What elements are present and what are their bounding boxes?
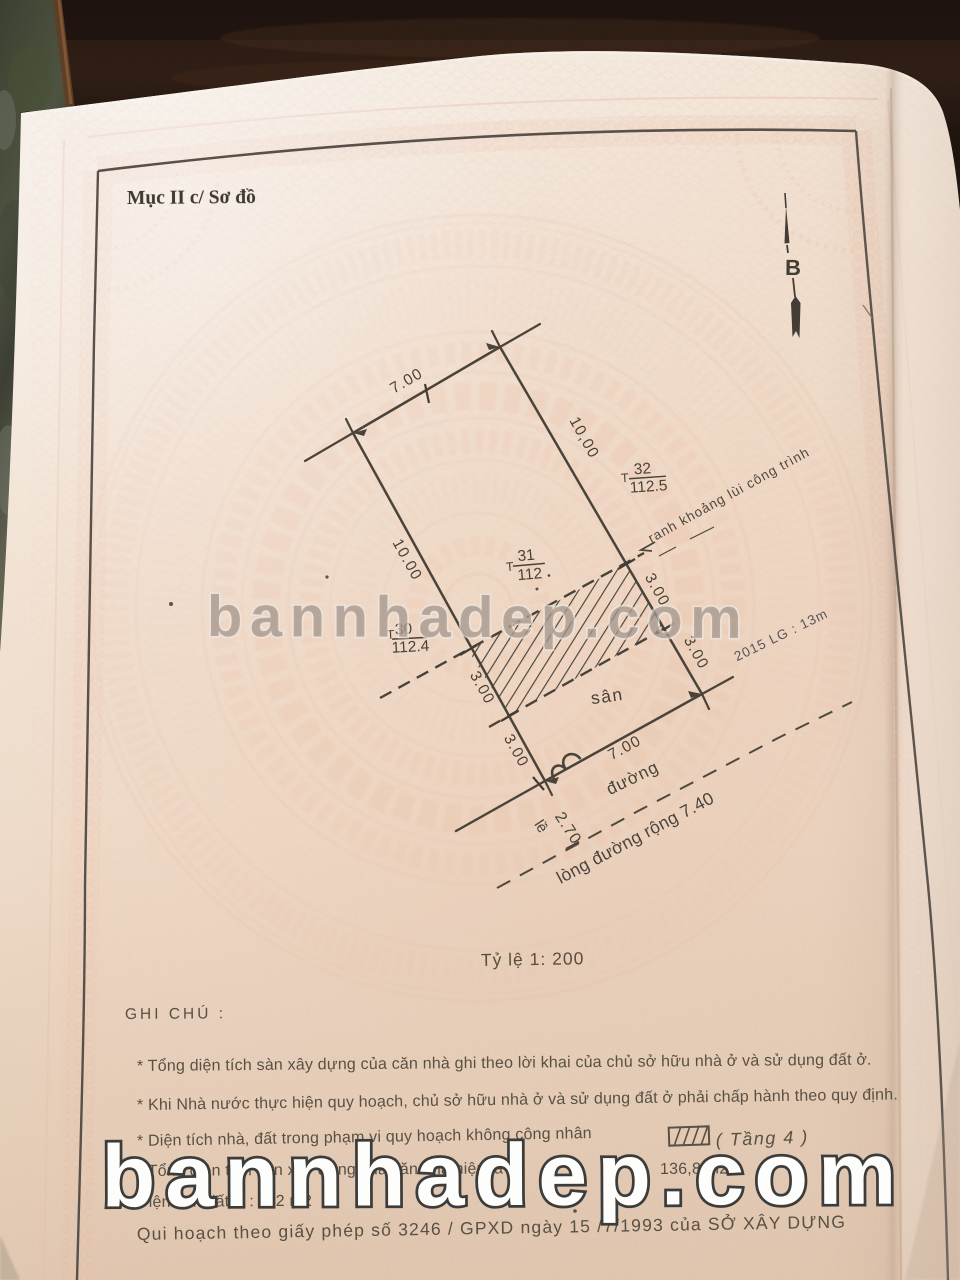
svg-text:bannhadep.com: bannhadep.com — [101, 1124, 906, 1226]
svg-text:bannhadep.com: bannhadep.com — [207, 584, 749, 651]
